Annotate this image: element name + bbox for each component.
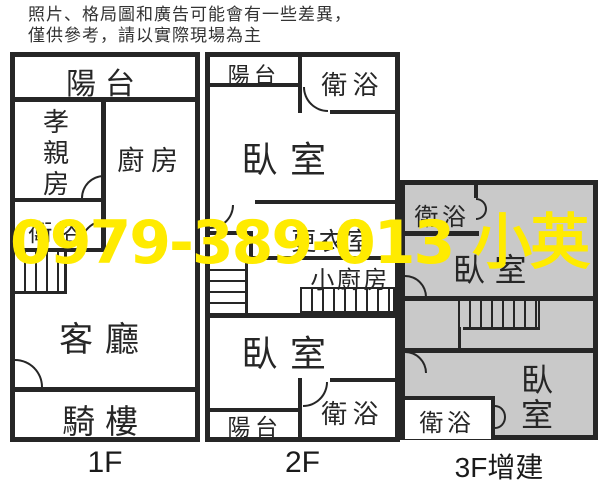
- room-label-bathroom-bottom: 衛浴: [310, 394, 395, 431]
- watermark-phone-number: 0979-389-013 小英: [10, 194, 588, 281]
- wall: [298, 57, 302, 113]
- room-label-bedroom-lower: 臥室: [235, 325, 345, 377]
- wall: [298, 378, 302, 437]
- room-label-bathroom-bottom: 衛浴: [411, 403, 483, 438]
- room-label-kitchen: 廚房: [107, 139, 195, 178]
- room-label-balcony-bottom: 陽台: [215, 408, 295, 442]
- room-label-bedroom-upper: 臥室: [235, 131, 345, 183]
- wall: [458, 327, 461, 348]
- door-arc: [405, 351, 427, 373]
- wall: [210, 313, 395, 318]
- room-label-balcony: 陽台: [15, 59, 195, 103]
- wall: [405, 348, 593, 353]
- floor-label-3f: 3F增建: [400, 446, 598, 486]
- room-label-bathroom-top: 衛浴: [310, 65, 395, 102]
- wall: [15, 387, 195, 392]
- floor-label-2f: 2F: [205, 446, 400, 480]
- room-label-parents-room: 孝親房: [41, 107, 71, 200]
- disclaimer-text: 照片、格局圖和廣告可能會有一些差異， 僅供參考，請以實際現場為主: [28, 4, 388, 46]
- staircase: [458, 301, 540, 329]
- room-label-bedroom-lower: 臥室: [519, 363, 555, 433]
- floor-label-1f: 1F: [10, 446, 200, 480]
- disclaimer-line-1: 照片、格局圖和廣告可能會有一些差異，: [28, 4, 388, 25]
- disclaimer-line-2: 僅供參考，請以實際現場為主: [28, 25, 388, 46]
- door-arc: [15, 359, 43, 387]
- room-label-living-room: 客廳: [35, 312, 175, 361]
- wall: [330, 110, 395, 114]
- wall: [330, 378, 395, 382]
- wall: [463, 327, 540, 330]
- room-label-balcony-top: 陽台: [210, 58, 298, 90]
- door-arc: [495, 405, 506, 429]
- room-label-arcade: 騎樓: [15, 395, 195, 443]
